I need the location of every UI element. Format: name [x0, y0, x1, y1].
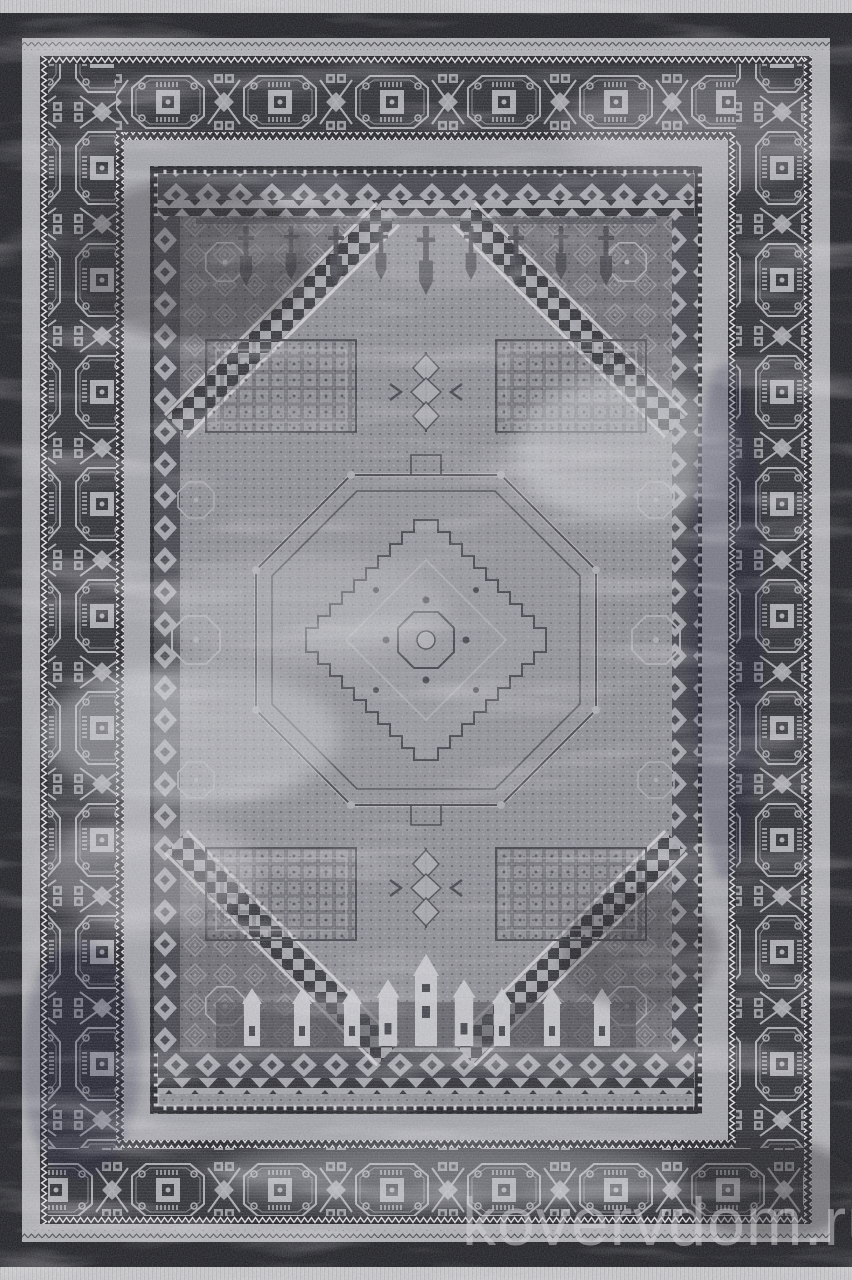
rug-product-photo: kovervdom.ru — [0, 0, 852, 1280]
rug-illustration — [0, 0, 852, 1280]
distress-overlay — [0, 0, 852, 1280]
